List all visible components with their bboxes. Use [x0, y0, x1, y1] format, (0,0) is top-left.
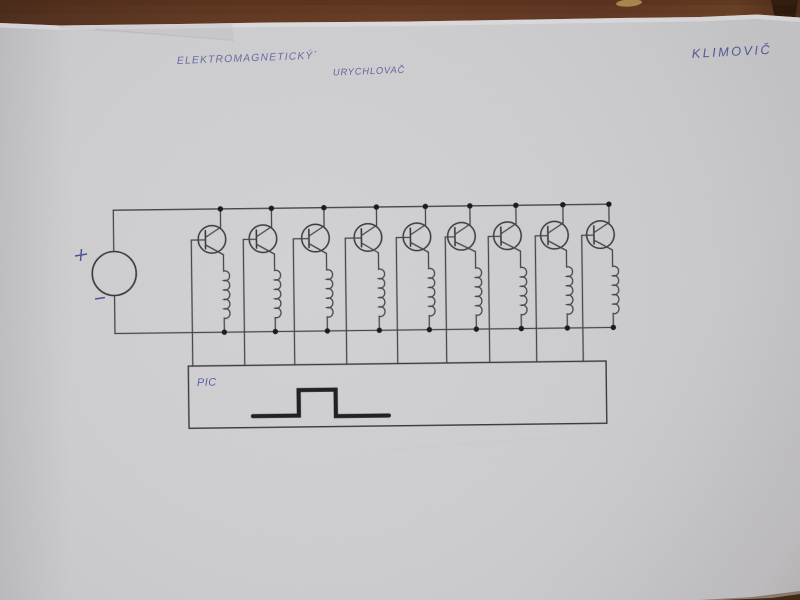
- svg-text:PIC: PIC: [197, 376, 217, 389]
